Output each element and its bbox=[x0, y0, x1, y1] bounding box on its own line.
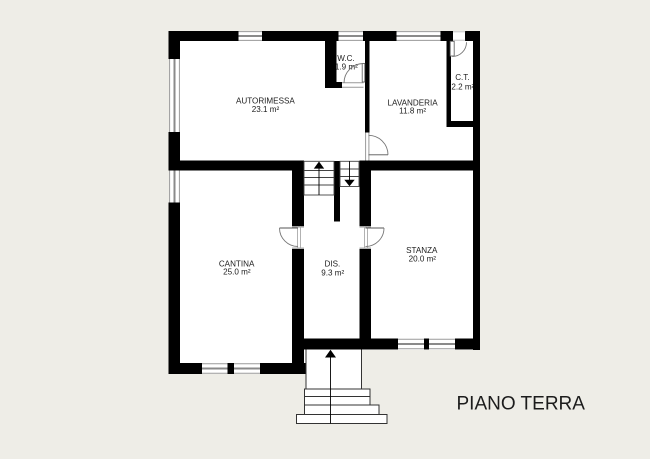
svg-text:9.3 m²: 9.3 m² bbox=[321, 268, 344, 277]
svg-text:20.0 m²: 20.0 m² bbox=[409, 255, 437, 264]
svg-text:25.0 m²: 25.0 m² bbox=[223, 268, 251, 277]
svg-text:2.2 m²: 2.2 m² bbox=[451, 82, 474, 91]
svg-text:23.1 m²: 23.1 m² bbox=[252, 105, 280, 114]
svg-text:DIS.: DIS. bbox=[325, 259, 341, 268]
svg-text:11.8 m²: 11.8 m² bbox=[399, 106, 426, 115]
svg-text:C.T.: C.T. bbox=[455, 73, 469, 82]
svg-text:1.9 m²: 1.9 m² bbox=[335, 62, 358, 71]
svg-text:STANZA: STANZA bbox=[406, 246, 438, 255]
svg-text:PIANO TERRA: PIANO TERRA bbox=[457, 394, 586, 415]
